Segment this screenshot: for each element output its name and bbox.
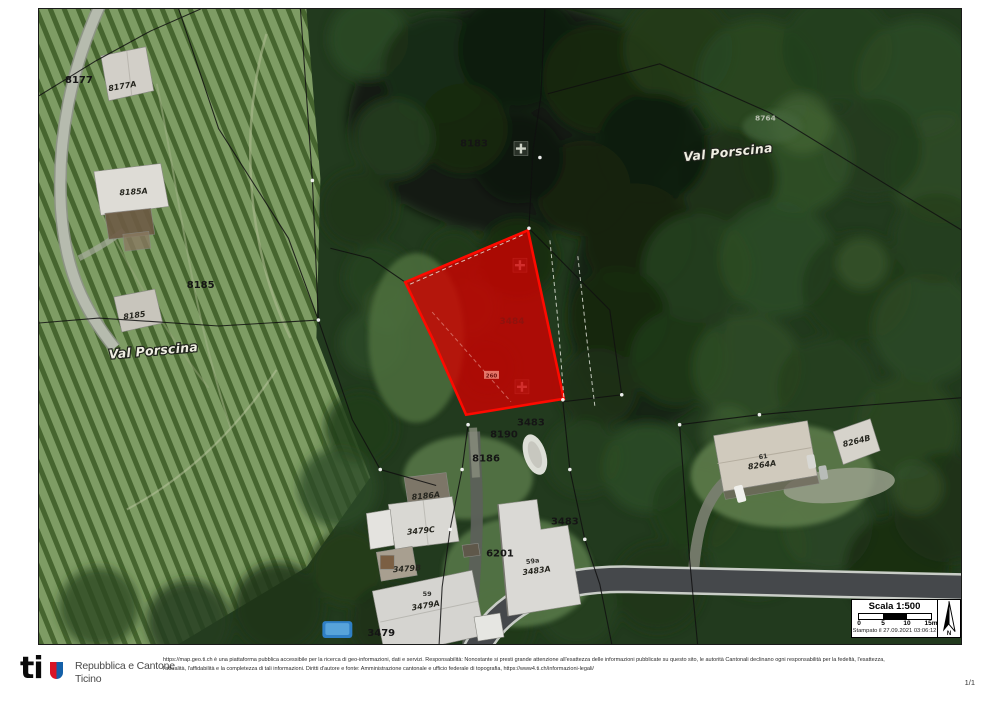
parcel-label-8183: 8183 bbox=[460, 139, 488, 150]
north-arrow: N bbox=[938, 600, 960, 637]
scale-tick-15: 15m bbox=[924, 620, 937, 627]
parcel-label-6201: 6201 bbox=[486, 548, 514, 559]
print-page: 8177 8177A 8185A 8185 8185 Val Porscina … bbox=[0, 0, 1000, 706]
scale-tick-0: 0 bbox=[857, 620, 861, 627]
parcel-label-3483-a: 3483 bbox=[517, 418, 545, 429]
north-arrow-icon bbox=[938, 600, 960, 634]
print-timestamp: Stampato il 27.09.2021 03:06:12 bbox=[852, 628, 937, 634]
scale-bar-section: Scala 1:500 0 5 10 15m Stampato il 27.09… bbox=[852, 600, 938, 637]
parcel-label-8764: 8764 bbox=[755, 114, 776, 123]
parcel-label-8185: 8185 bbox=[187, 280, 215, 291]
scale-segment-2 bbox=[883, 614, 907, 619]
address-label-59: 59 bbox=[423, 590, 433, 598]
parcel-label-8190: 8190 bbox=[490, 430, 518, 441]
disclaimer-line1: https://map.geo.ti.ch è una piattaforma … bbox=[163, 656, 963, 665]
scale-segment-1 bbox=[859, 614, 883, 619]
parcel-label-8186: 8186 bbox=[472, 454, 500, 465]
parcel-label-3483-b: 3483 bbox=[551, 516, 579, 527]
disclaimer-line2: l'attualità, l'affidabilità e la complet… bbox=[163, 665, 963, 674]
scale-title: Scala 1:500 bbox=[852, 601, 937, 612]
scale-ticks: 0 5 10 15m bbox=[852, 620, 937, 628]
north-label: N bbox=[947, 631, 951, 637]
parcel-label-8177: 8177 bbox=[65, 75, 93, 86]
canton-name-line2: Ticino bbox=[75, 673, 175, 686]
parcel-label-3484: 3484 bbox=[499, 317, 524, 327]
page-number: 1/1 bbox=[965, 678, 975, 687]
canton-name: Repubblica e Cantone Ticino bbox=[75, 660, 175, 686]
map-area: 8177 8177A 8185A 8185 8185 Val Porscina … bbox=[38, 8, 962, 645]
point-chip-260-label: 260 bbox=[486, 373, 498, 379]
scale-segment-3 bbox=[907, 614, 931, 619]
ti-logo: ti bbox=[20, 654, 43, 684]
parcel-label-3479: 3479 bbox=[367, 628, 395, 639]
page-footer: ti Repubblica e Cantone Ticino https://m… bbox=[0, 645, 1000, 706]
scale-bar bbox=[858, 613, 932, 620]
scale-tick-5: 5 bbox=[881, 620, 885, 627]
point-chip-260: 260 bbox=[484, 371, 499, 379]
scale-tick-10: 10 bbox=[903, 620, 910, 627]
ticino-shield-icon bbox=[50, 662, 63, 679]
legal-disclaimer: https://map.geo.ti.ch è una piattaforma … bbox=[163, 656, 963, 673]
canton-name-line1: Repubblica e Cantone bbox=[75, 660, 175, 673]
scale-box: Scala 1:500 0 5 10 15m Stampato il 27.09… bbox=[851, 599, 961, 638]
aerial-map: 8177 8177A 8185A 8185 8185 Val Porscina … bbox=[39, 9, 961, 644]
